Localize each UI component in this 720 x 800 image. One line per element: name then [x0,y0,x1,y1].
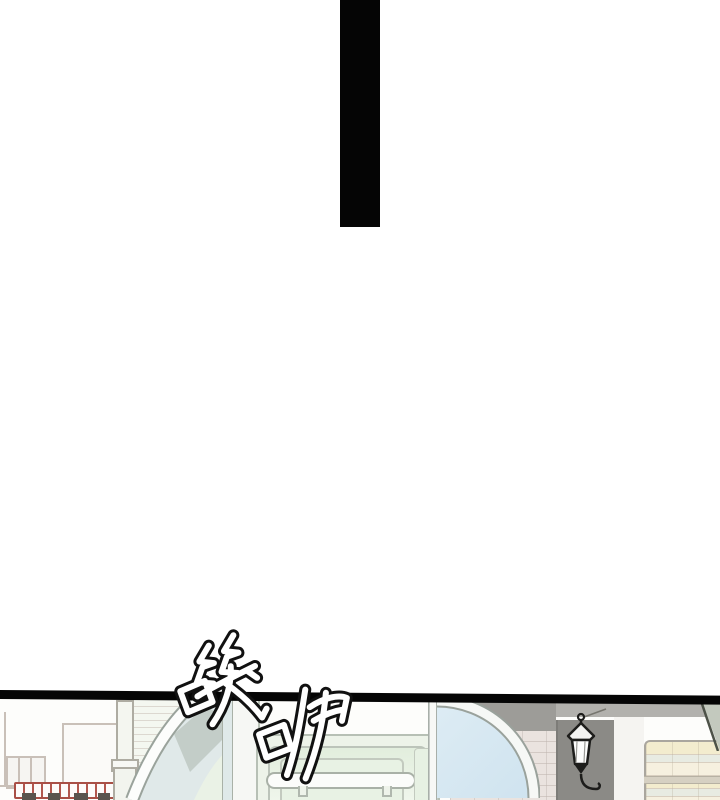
sfx-calligraphy [158,628,368,794]
sfx-char-yi [254,684,357,784]
shop-window-stub [48,793,60,800]
roof-corner [698,701,720,751]
push-bar-stem [382,786,392,797]
sfx-char-ji [172,632,268,731]
top-bleed-bar [340,0,380,227]
blue-arch-window [424,699,540,800]
comic-page[interactable]: 嘰咿 [0,0,720,800]
brick-sill-band [644,776,720,784]
sfx-text: 嘰咿 [0,0,1,1]
white-pillar [614,717,644,800]
shop-window-stub [22,793,36,800]
wall-lantern [548,708,608,800]
shop-window-stub [98,793,110,800]
shop-window-stub [74,793,88,800]
